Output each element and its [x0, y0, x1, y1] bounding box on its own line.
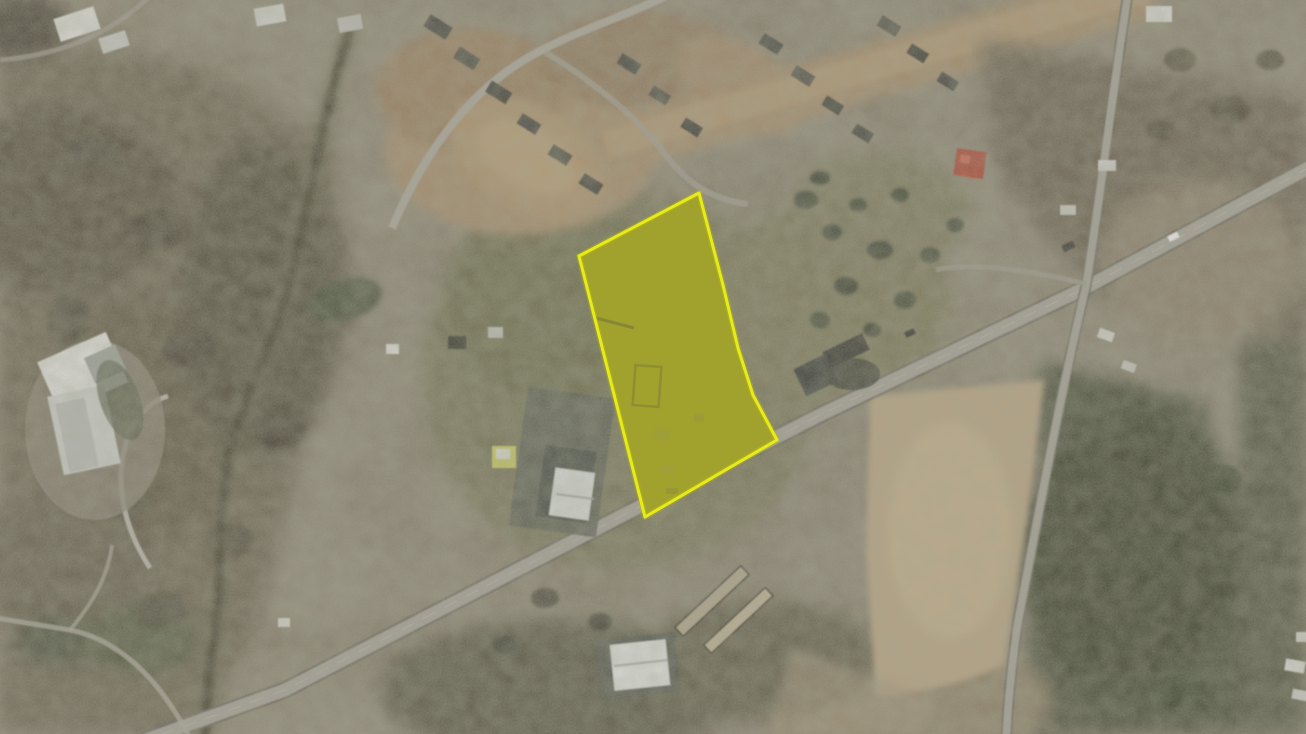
satellite-map-canvas[interactable]: [0, 0, 1306, 734]
satellite-map-viewport[interactable]: [0, 0, 1306, 734]
